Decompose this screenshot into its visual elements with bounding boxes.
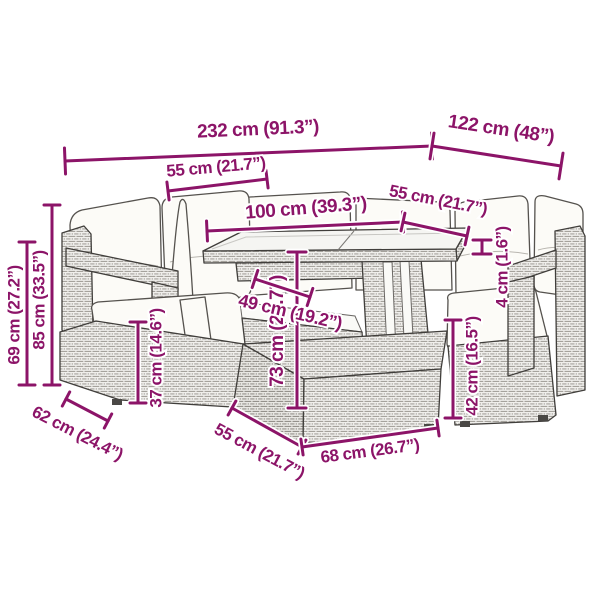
dimension-label-overall-depth: 122 cm (48”) xyxy=(447,111,556,148)
dimension-overall-depth: 122 cm (48”) xyxy=(430,111,563,179)
foot xyxy=(538,415,548,421)
dimension-label-overall-width: 232 cm (91.3”) xyxy=(197,116,320,142)
diagram-canvas: 232 cm (91.3”)122 cm (48”)55 cm (21.7”)1… xyxy=(0,0,600,600)
dimension-label-ottoman-height: 42 cm (16.5”) xyxy=(462,316,481,415)
foot xyxy=(112,399,122,405)
dimension-table-height: 73 cm (28.7”) xyxy=(267,252,306,408)
dimension-backrest-height: 85 cm (33.5”) xyxy=(29,205,60,385)
dimension-label-glass-thickness: 4 cm (1.6”) xyxy=(492,226,511,307)
dimension-label-backrest-height: 85 cm (33.5”) xyxy=(29,250,48,349)
dimension-side-depth: 62 cm (24.4”) xyxy=(29,392,126,464)
armrest-back-post xyxy=(62,226,93,338)
dimension-label-armrest-height: 69 cm (27.2”) xyxy=(4,265,23,364)
dimension-label-seat-height: 37 cm (14.6”) xyxy=(146,308,165,407)
product-dimension-diagram: 232 cm (91.3”)122 cm (48”)55 cm (21.7”)1… xyxy=(0,0,600,600)
foot xyxy=(460,421,470,427)
dimension-ottoman-height: 42 cm (16.5”) xyxy=(445,316,481,418)
armrest-panel xyxy=(555,226,585,396)
armrest-front-post xyxy=(508,276,534,376)
dimension-seat-height: 37 cm (14.6”) xyxy=(130,308,165,407)
